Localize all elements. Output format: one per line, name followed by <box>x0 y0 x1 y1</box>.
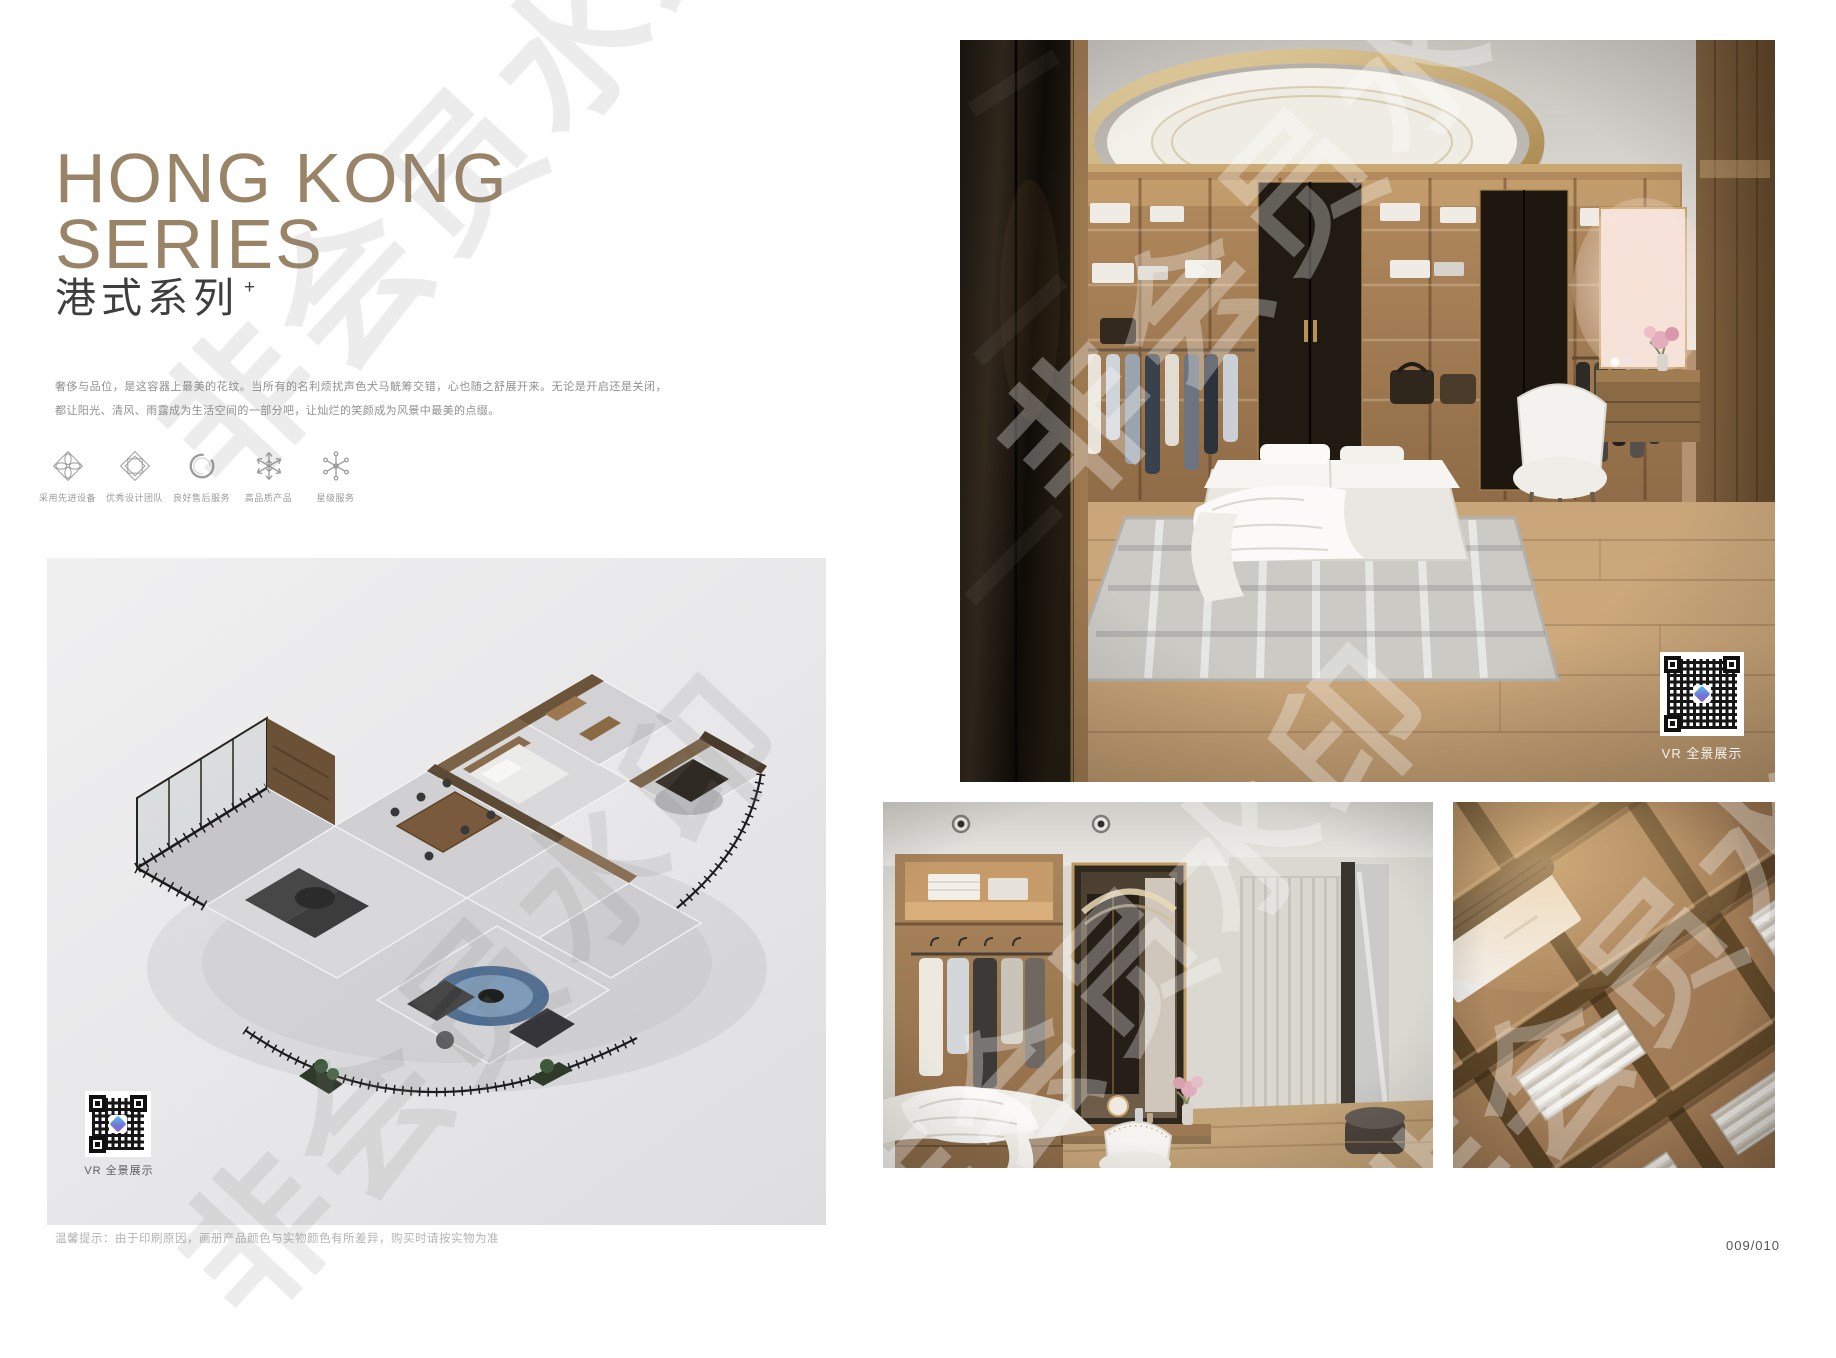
series-title-en: HONG KONG SERIES <box>55 146 509 278</box>
photo-qr-code <box>1660 652 1744 736</box>
dressing-area-render <box>883 802 1433 1168</box>
feature-item: 采用先进设备 <box>34 448 101 504</box>
plus-mark: + <box>244 277 260 298</box>
feature-label: 采用先进设备 <box>34 491 101 504</box>
qr-finder-icon <box>89 1136 106 1153</box>
feature-label: 高品质产品 <box>235 491 302 504</box>
disclaimer-text: 温馨提示：由于印刷原因，画册产品颜色与实物颜色有所差异，购买时请按实物为准 <box>55 1230 499 1246</box>
page-number: 009/010 <box>1650 1238 1780 1253</box>
advanced-equipment-icon <box>50 448 86 484</box>
walkin-closet-photo: VR 全景展示 <box>960 40 1775 782</box>
vr-cube-logo-icon <box>109 1115 127 1133</box>
qr-finder-icon <box>1723 656 1740 673</box>
feature-item: 优秀设计团队 <box>101 448 168 504</box>
qr-finder-icon <box>1664 656 1681 673</box>
qr-finder-icon <box>89 1095 106 1112</box>
series-title-cn: 港式系列+ <box>55 264 260 324</box>
vr-cube-logo-icon <box>1693 685 1711 703</box>
floorplan-panel: VR 全景展示 <box>47 558 826 1225</box>
dressing-area-photo <box>883 802 1433 1168</box>
series-subtitle: 港式系列 <box>55 275 239 321</box>
after-sales-icon <box>184 448 220 484</box>
feature-label: 良好售后服务 <box>168 491 235 504</box>
shelf-closeup-render <box>1453 802 1775 1168</box>
shelf-closeup-photo <box>1453 802 1775 1168</box>
floorplan-qr-code <box>85 1091 151 1157</box>
qr-finder-icon <box>130 1095 147 1112</box>
design-team-icon <box>117 448 153 484</box>
feature-label: 星级服务 <box>302 491 369 504</box>
quality-product-icon <box>251 448 287 484</box>
vr-panorama-label: VR 全景展示 <box>59 1162 179 1178</box>
feature-row: 采用先进设备 优秀设计团队 良好售后服务 高品质产品 <box>34 448 369 504</box>
walkin-closet-render <box>960 40 1775 782</box>
feature-item: 高品质产品 <box>235 448 302 504</box>
vr-panorama-label: VR 全景展示 <box>1648 743 1756 762</box>
floorplan-isometric-image <box>77 568 792 1188</box>
qr-finder-icon <box>1664 715 1681 732</box>
star-service-icon <box>318 448 354 484</box>
feature-item: 星级服务 <box>302 448 369 504</box>
series-title-line1: HONG KONG <box>55 146 509 212</box>
series-description: 奢侈与品位，是这容器上最美的花纹。当所有的名利烦扰声色犬马觥筹交错，心也随之舒展… <box>55 376 667 423</box>
feature-label: 优秀设计团队 <box>101 491 168 504</box>
feature-item: 良好售后服务 <box>168 448 235 504</box>
catalog-page: { "watermark": { "text": "非会员水印" }, "ser… <box>0 0 1836 1307</box>
